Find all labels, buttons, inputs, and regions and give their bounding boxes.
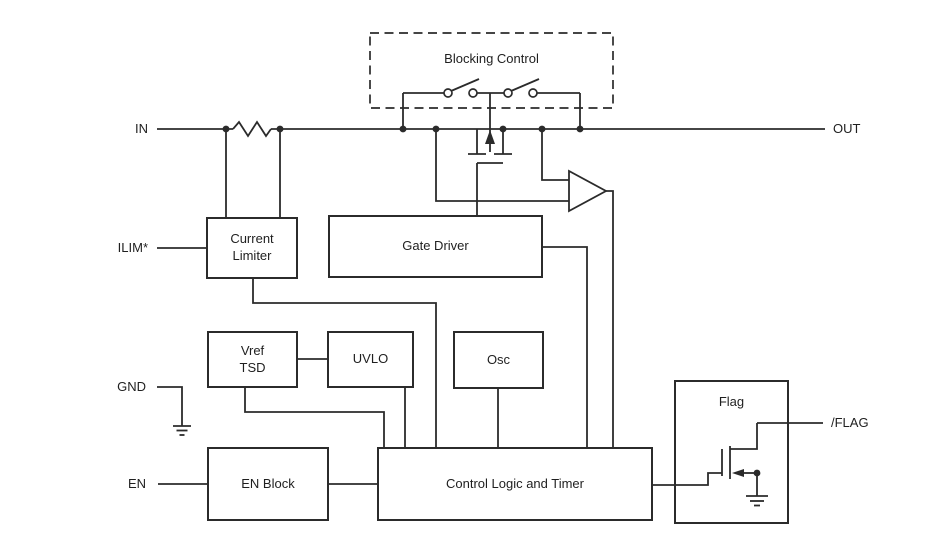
control-to-flag-wire: [652, 473, 722, 485]
pass-fet-symbol: [468, 129, 512, 216]
comparator-output-wire: [606, 191, 613, 448]
flag-fet-drain-wire: [730, 423, 757, 449]
pin-label-in: IN: [96, 121, 148, 137]
gate-driver-output-wire: [542, 247, 587, 448]
gnd-lead-wire: [157, 387, 182, 426]
current-limiter-label: Current Limiter: [207, 218, 297, 278]
blocking-control-label: Blocking Control: [370, 51, 613, 67]
control-logic-label: Control Logic and Timer: [378, 448, 652, 520]
gate-driver-label: Gate Driver: [329, 216, 542, 277]
comparator-upper-input-wire: [542, 129, 569, 180]
blocking-control-dashed-box: [370, 33, 613, 108]
switch-2-contact-right: [529, 89, 537, 97]
uvlo-label: UVLO: [328, 332, 413, 387]
pin-label-en: EN: [94, 476, 146, 492]
flag-fet-symbol: [722, 423, 823, 506]
sense-resistor: [233, 122, 271, 136]
pin-label-ilim: ILIM*: [96, 240, 148, 256]
flag-label: Flag: [675, 394, 788, 410]
vref-tsd-label: Vref TSD: [208, 332, 297, 387]
block-diagram: IN OUT ILIM* GND EN /FLAG Blocking Contr…: [0, 0, 952, 557]
osc-label: Osc: [454, 332, 543, 388]
switch-1-contact-left: [444, 89, 452, 97]
flag-fet-body-arrow: [732, 469, 744, 477]
switch-1-contact-right: [469, 89, 477, 97]
pin-label-out: OUT: [833, 121, 860, 137]
pin-label-flag: /FLAG: [831, 415, 869, 431]
en-block-label: EN Block: [208, 448, 328, 520]
comparator-triangle: [569, 171, 606, 211]
flag-ground-symbol: [746, 496, 768, 506]
gnd-ground-symbol: [173, 426, 191, 435]
pin-label-gnd: GND: [94, 379, 146, 395]
vref-output-wire: [245, 387, 384, 448]
switch-2-contact-left: [504, 89, 512, 97]
fet-body-arrow: [485, 130, 495, 144]
